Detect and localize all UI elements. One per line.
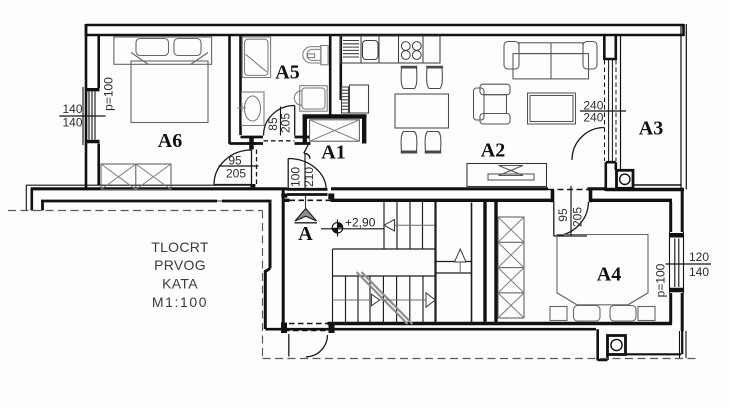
svg-text:205: 205 xyxy=(226,167,246,181)
svg-text:140: 140 xyxy=(62,102,82,116)
svg-text:140: 140 xyxy=(689,265,709,279)
svg-text:95: 95 xyxy=(556,208,570,222)
svg-text:205: 205 xyxy=(571,207,585,227)
svg-text:100: 100 xyxy=(289,167,303,187)
svg-text:140: 140 xyxy=(62,116,82,130)
svg-text:120: 120 xyxy=(689,250,709,264)
svg-text:240: 240 xyxy=(583,111,603,125)
svg-text:A6: A6 xyxy=(158,130,182,152)
svg-text:A4: A4 xyxy=(597,264,621,286)
svg-text:A2: A2 xyxy=(481,140,505,162)
svg-text:A: A xyxy=(298,223,313,245)
svg-text:M1:100: M1:100 xyxy=(152,294,208,310)
svg-text:A5: A5 xyxy=(275,62,299,84)
svg-text:210: 210 xyxy=(302,167,316,187)
svg-text:KATA: KATA xyxy=(162,276,198,292)
svg-text:p=100: p=100 xyxy=(102,77,116,111)
svg-text:A1: A1 xyxy=(321,142,345,164)
svg-text:p=100: p=100 xyxy=(654,263,668,297)
svg-text:TLOCRT: TLOCRT xyxy=(151,239,209,255)
svg-text:A3: A3 xyxy=(639,118,663,140)
svg-text:PRVOG: PRVOG xyxy=(154,257,206,273)
svg-text:95: 95 xyxy=(228,153,242,167)
svg-text:+2,90: +2,90 xyxy=(345,216,376,230)
